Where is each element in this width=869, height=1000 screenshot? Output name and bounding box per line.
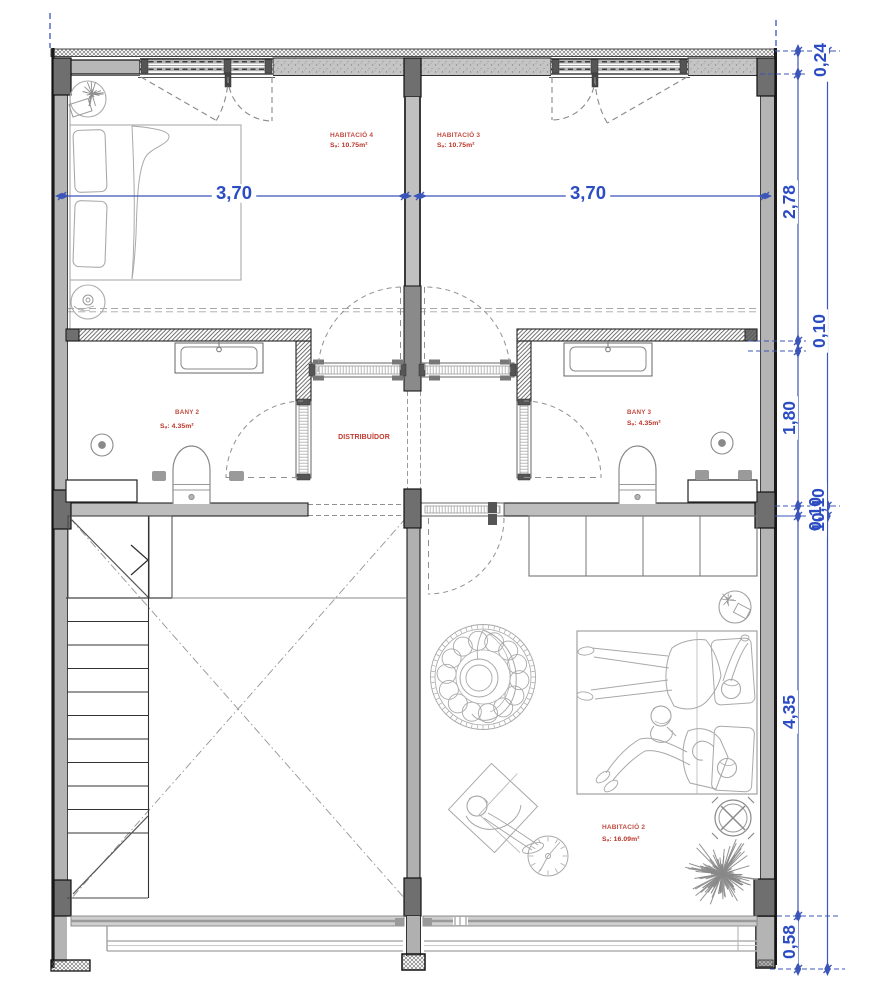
svg-text:2,78: 2,78 bbox=[779, 185, 799, 219]
svg-text:0,10: 0,10 bbox=[809, 314, 829, 348]
svg-text:HABITACIÓ 4: HABITACIÓ 4 bbox=[330, 130, 373, 139]
svg-text:BANY 3: BANY 3 bbox=[627, 409, 651, 416]
svg-text:0,10: 0,10 bbox=[805, 497, 825, 531]
svg-text:3,70: 3,70 bbox=[216, 182, 252, 203]
svg-text:HABITACIÓ 2: HABITACIÓ 2 bbox=[602, 822, 645, 831]
svg-text:HABITACIÓ 3: HABITACIÓ 3 bbox=[437, 130, 480, 139]
svg-text:Sₔ: 4.35m²: Sₔ: 4.35m² bbox=[627, 420, 661, 427]
svg-text:3,70: 3,70 bbox=[570, 182, 606, 203]
svg-text:DISTRIBUÏDOR: DISTRIBUÏDOR bbox=[338, 433, 390, 441]
svg-text:0,58: 0,58 bbox=[779, 925, 799, 959]
svg-text:Sₔ: 10.75m²: Sₔ: 10.75m² bbox=[330, 142, 368, 149]
svg-text:Sₔ: 10.75m²: Sₔ: 10.75m² bbox=[437, 142, 475, 149]
svg-text:0,24: 0,24 bbox=[810, 43, 830, 77]
svg-text:Sₔ: 4.35m²: Sₔ: 4.35m² bbox=[160, 423, 194, 430]
svg-text:BANY 2: BANY 2 bbox=[175, 409, 199, 416]
svg-text:1,80: 1,80 bbox=[779, 401, 799, 435]
svg-text:4,35: 4,35 bbox=[779, 695, 799, 729]
svg-text:Sₔ: 16.09m²: Sₔ: 16.09m² bbox=[602, 836, 640, 843]
